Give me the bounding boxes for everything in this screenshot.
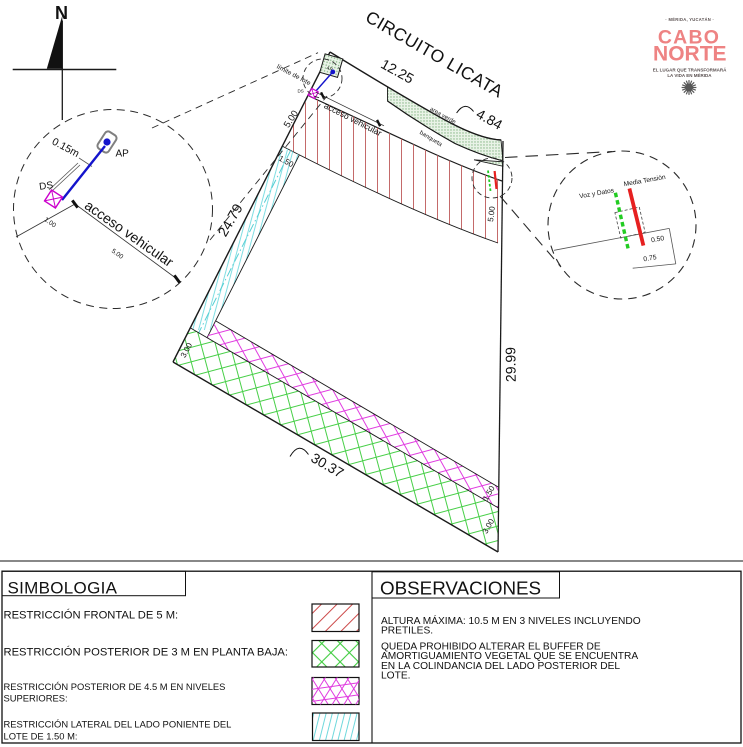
svg-text:DS: DS [39,180,55,193]
svg-text:· MÉRIDA, YUCATÁN ·: · MÉRIDA, YUCATÁN · [665,17,714,22]
svg-text:NORTE: NORTE [653,43,727,66]
svg-text:LOTE.: LOTE. [381,670,410,681]
svg-text:OBSERVACIONES: OBSERVACIONES [380,578,541,599]
svg-text:RESTRICCIÓN POSTERIOR DE 3 M E: RESTRICCIÓN POSTERIOR DE 3 M EN PLANTA B… [4,645,289,658]
svg-text:SUPERIORES:: SUPERIORES: [4,693,68,704]
svg-text:DS: DS [298,89,304,94]
svg-text:LOTE DE 1.50 M:: LOTE DE 1.50 M: [4,730,78,741]
svg-text:EL LUGAR QUE TRANSFORMARÁ: EL LUGAR QUE TRANSFORMARÁ [653,67,727,73]
svg-text:SIMBOLOGIA: SIMBOLOGIA [8,579,118,598]
svg-text:AP: AP [116,149,130,160]
svg-text:N: N [55,3,68,23]
svg-text:29.99: 29.99 [502,347,519,383]
svg-text:EN LA COLINDANCIA DEL LADO POS: EN LA COLINDANCIA DEL LADO POSTERIOR DEL [381,661,620,672]
svg-text:RESTRICCIÓN POSTERIOR DE 4.5 M: RESTRICCIÓN POSTERIOR DE 4.5 M EN NIVELE… [4,681,226,692]
svg-text:RESTRICCIÓN FRONTAL DE 5 M:: RESTRICCIÓN FRONTAL DE 5 M: [4,609,179,622]
svg-text:PRETILES.: PRETILES. [381,625,433,636]
svg-text:RESTRICCIÓN LATERAL DEL LADO P: RESTRICCIÓN LATERAL DEL LADO PONIENTE DE… [4,719,232,730]
svg-text:LA VIDA EN MÉRIDA: LA VIDA EN MÉRIDA [667,71,712,78]
